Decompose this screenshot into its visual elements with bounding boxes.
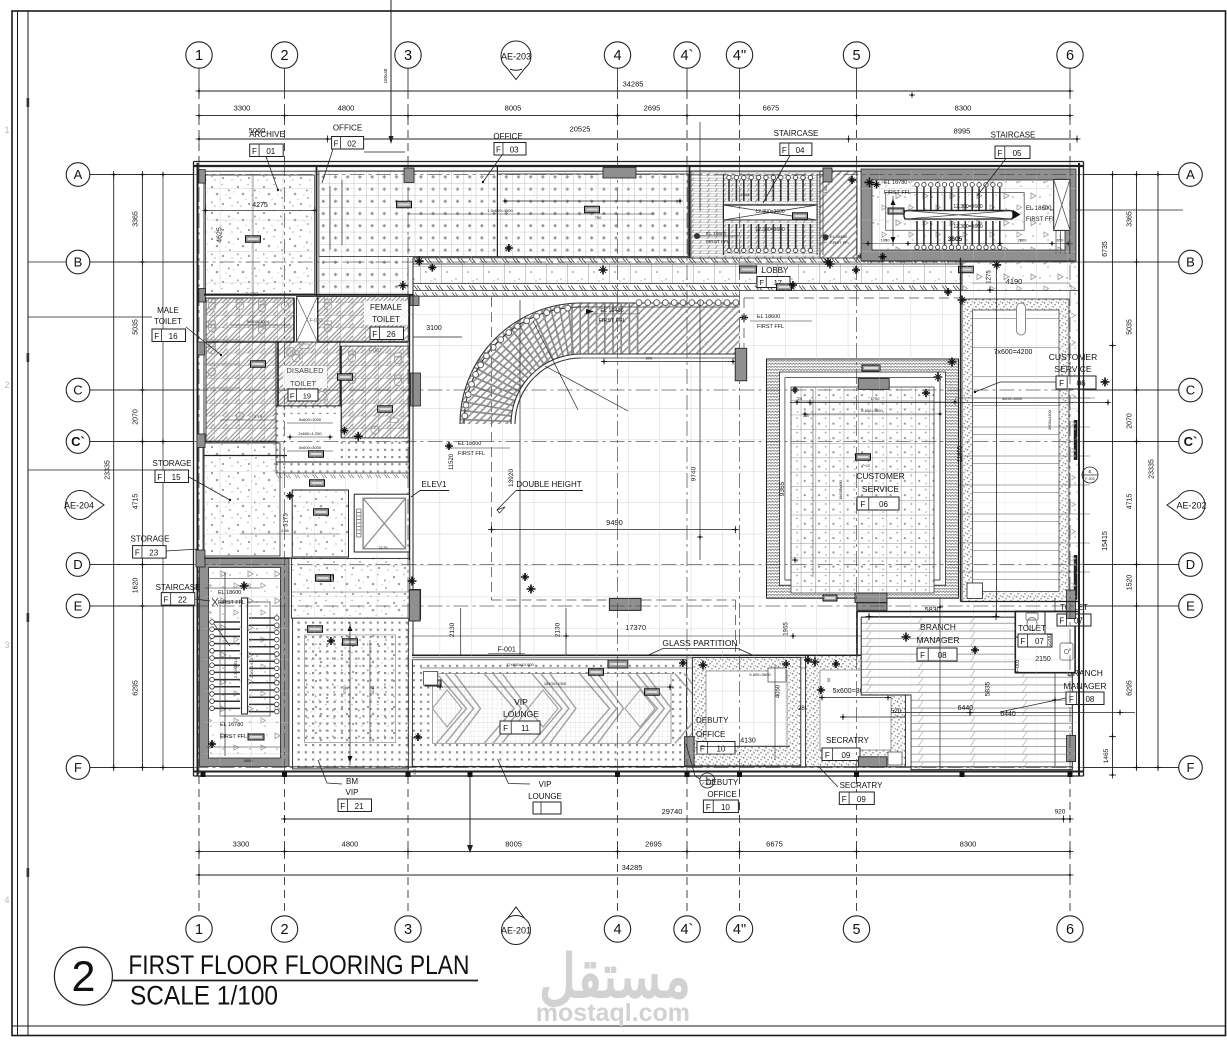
svg-text:9740: 9740 <box>691 466 698 481</box>
svg-text:14600x400: 14600x400 <box>838 479 843 500</box>
svg-text:MALE: MALE <box>157 306 179 315</box>
svg-text:B: B <box>1186 255 1195 270</box>
svg-text:4625: 4625 <box>217 227 224 243</box>
svg-text:EL 16486: EL 16486 <box>600 308 623 314</box>
svg-text:6735: 6735 <box>1102 241 1109 257</box>
svg-text:EL 16780: EL 16780 <box>884 180 907 186</box>
svg-text:8005: 8005 <box>505 839 522 848</box>
svg-text:2695: 2695 <box>645 839 662 848</box>
svg-text:STAIRCASE: STAIRCASE <box>991 131 1036 140</box>
svg-text:BM: BM <box>346 777 358 786</box>
svg-text:19: 19 <box>303 391 311 400</box>
svg-text:3700: 3700 <box>342 685 347 695</box>
svg-text:2.30=3.610: 2.30=3.610 <box>249 657 254 678</box>
svg-text:5035: 5035 <box>133 319 140 335</box>
svg-text:STAIRCASE: STAIRCASE <box>774 129 819 138</box>
svg-text:FIRST FFL: FIRST FFL <box>884 190 911 196</box>
svg-text:15: 15 <box>172 473 181 482</box>
svg-text:F-003: F-003 <box>1015 659 1021 672</box>
svg-text:AE-203: AE-203 <box>501 52 531 62</box>
svg-text:6295: 6295 <box>133 680 140 696</box>
svg-text:F: F <box>825 751 830 760</box>
svg-text:11520: 11520 <box>449 453 455 470</box>
svg-text:03: 03 <box>510 145 519 154</box>
svg-text:F: F <box>372 330 377 339</box>
svg-text:F: F <box>700 744 705 753</box>
svg-text:15415: 15415 <box>1102 531 1109 551</box>
svg-text:4: 4 <box>613 48 621 64</box>
svg-text:5.600=3600: 5.600=3600 <box>749 672 771 677</box>
svg-text:C: C <box>1186 383 1195 398</box>
svg-text:17x600x10.000: 17x600x10.000 <box>506 662 534 667</box>
svg-text:DOUBLE HEIGHT: DOUBLE HEIGHT <box>516 480 581 489</box>
svg-text:ARCHIVE: ARCHIVE <box>249 130 285 139</box>
svg-text:F: F <box>164 595 169 604</box>
svg-text:SECRATRY: SECRATRY <box>826 736 869 745</box>
svg-text:FIRST FFL: FIRST FFL <box>830 240 850 245</box>
svg-text:4`: 4` <box>681 922 694 938</box>
svg-text:5835: 5835 <box>985 681 992 696</box>
svg-text:29740: 29740 <box>662 807 683 816</box>
svg-text:1965: 1965 <box>783 622 789 636</box>
svg-text:D: D <box>73 557 82 572</box>
svg-text:04: 04 <box>796 146 805 155</box>
svg-text:10: 10 <box>716 744 725 753</box>
svg-text:06: 06 <box>879 500 888 509</box>
svg-text:F: F <box>997 149 1002 158</box>
svg-text:1620: 1620 <box>133 578 140 594</box>
svg-text:05: 05 <box>1013 149 1022 158</box>
svg-text:4715: 4715 <box>133 494 140 510</box>
svg-text:4": 4" <box>733 922 746 938</box>
svg-text:2: 2 <box>280 48 288 64</box>
svg-text:DEBUTY: DEBUTY <box>696 716 729 725</box>
svg-text:FIRST FFL: FIRST FFL <box>757 324 784 330</box>
svg-text:2365: 2365 <box>741 192 751 197</box>
svg-text:09: 09 <box>857 795 866 804</box>
svg-text:22: 22 <box>178 595 187 604</box>
svg-text:TOILET: TOILET <box>1018 624 1046 633</box>
svg-text:D: D <box>1186 557 1195 572</box>
svg-text:FIRST FLOOR FLOORING PLAN: FIRST FLOOR FLOORING PLAN <box>128 950 469 980</box>
svg-text:LOUNGE: LOUNGE <box>503 709 539 719</box>
svg-text:2800: 2800 <box>1018 238 1028 243</box>
svg-text:4800: 4800 <box>338 104 355 113</box>
svg-text:2150: 2150 <box>1035 656 1051 663</box>
svg-text:12.300=3600: 12.300=3600 <box>953 204 983 210</box>
svg-text:3: 3 <box>404 922 412 938</box>
svg-text:FIRST FFL: FIRST FFL <box>598 318 625 324</box>
svg-text:F: F <box>154 332 159 341</box>
svg-text:21: 21 <box>355 802 364 811</box>
svg-text:4715: 4715 <box>1127 494 1134 510</box>
svg-text:34285: 34285 <box>623 80 644 89</box>
svg-text:OFFICE: OFFICE <box>333 124 362 133</box>
svg-text:EL 16480: EL 16480 <box>830 234 848 239</box>
svg-text:2: 2 <box>4 380 9 390</box>
svg-text:07: 07 <box>1035 637 1044 646</box>
svg-text:4275: 4275 <box>252 202 268 209</box>
svg-text:F: F <box>759 278 764 287</box>
svg-text:FIRST FFL: FIRST FFL <box>1026 217 1056 223</box>
svg-text:26: 26 <box>387 330 396 339</box>
svg-text:08: 08 <box>1085 695 1094 704</box>
svg-text:23: 23 <box>149 548 158 557</box>
svg-text:6440: 6440 <box>958 705 974 712</box>
svg-text:FIRST FFL: FIRST FFL <box>218 600 245 606</box>
svg-text:F: F <box>1059 616 1064 625</box>
svg-text:50: 50 <box>826 677 831 682</box>
svg-text:EL 18600: EL 18600 <box>1026 206 1052 212</box>
svg-text:08: 08 <box>938 651 947 660</box>
svg-text:12.300=3600: 12.300=3600 <box>755 209 785 215</box>
svg-text:FIRST FFL: FIRST FFL <box>458 451 485 457</box>
svg-text:DEBUTY: DEBUTY <box>706 778 739 787</box>
svg-text:13920: 13920 <box>508 469 515 487</box>
svg-text:9365: 9365 <box>779 481 786 496</box>
svg-text:OFFICE: OFFICE <box>493 132 522 141</box>
svg-text:5035: 5035 <box>1127 319 1134 335</box>
svg-text:9490: 9490 <box>606 518 623 527</box>
svg-text:4800: 4800 <box>342 839 359 848</box>
svg-text:C`: C` <box>71 434 85 449</box>
svg-text:5x600=3000: 5x600=3000 <box>299 445 322 450</box>
svg-text:OFFICE: OFFICE <box>696 730 725 739</box>
svg-text:6295: 6295 <box>1127 680 1134 696</box>
svg-text:GLASS PARTITION: GLASS PARTITION <box>662 638 737 648</box>
svg-text:11: 11 <box>521 724 530 733</box>
svg-text:34285: 34285 <box>622 863 643 872</box>
svg-text:5x600=3000: 5x600=3000 <box>247 319 270 324</box>
svg-text:F: F <box>706 803 711 812</box>
svg-text:ELEV1: ELEV1 <box>422 480 447 489</box>
svg-text:F-007: F-007 <box>368 348 381 354</box>
svg-text:3300: 3300 <box>233 839 250 848</box>
svg-text:SECRATRY: SECRATRY <box>840 781 883 790</box>
svg-text:23335: 23335 <box>1149 459 1156 479</box>
svg-text:TOILET: TOILET <box>290 379 317 388</box>
svg-text:7x600=4200: 7x600=4200 <box>994 349 1033 356</box>
svg-text:LOUNGE: LOUNGE <box>528 792 562 801</box>
svg-text:12.300=3600: 12.300=3600 <box>953 224 983 230</box>
svg-text:8995: 8995 <box>954 127 971 136</box>
svg-text:2.19: 2.19 <box>254 414 263 419</box>
svg-text:4: 4 <box>613 922 621 938</box>
svg-text:F: F <box>290 391 295 400</box>
svg-text:F: F <box>334 139 339 148</box>
svg-text:6675: 6675 <box>766 839 783 848</box>
svg-text:F: F <box>1020 637 1025 646</box>
svg-text:F: F <box>860 500 865 509</box>
svg-text:F-003: F-003 <box>309 318 322 324</box>
svg-text:2170: 2170 <box>379 545 389 550</box>
svg-text:C`: C` <box>1184 434 1198 449</box>
svg-text:F: F <box>1187 760 1195 775</box>
svg-text:B: B <box>74 255 83 270</box>
svg-text:F: F <box>782 146 787 155</box>
svg-text:A: A <box>74 167 83 182</box>
svg-text:600: 600 <box>646 356 653 361</box>
svg-text:3600: 3600 <box>244 758 254 763</box>
svg-text:3100: 3100 <box>426 325 442 332</box>
svg-text:4`: 4` <box>681 48 694 64</box>
svg-text:3365: 3365 <box>133 211 140 227</box>
svg-text:1050: 1050 <box>881 238 891 243</box>
svg-text:E: E <box>1088 469 1091 474</box>
svg-text:A: A <box>1186 167 1195 182</box>
svg-text:TOILET: TOILET <box>154 317 182 326</box>
svg-text:3: 3 <box>4 640 9 650</box>
svg-text:2070: 2070 <box>133 409 140 425</box>
svg-text:6: 6 <box>1066 48 1074 64</box>
svg-text:E: E <box>74 599 83 614</box>
svg-text:LOBBY: LOBBY <box>762 266 789 275</box>
svg-text:F-001: F-001 <box>497 647 515 654</box>
svg-text:920: 920 <box>1055 809 1066 816</box>
svg-text:1275: 1275 <box>987 270 993 284</box>
svg-text:09: 09 <box>841 751 850 760</box>
svg-text:F: F <box>920 651 925 660</box>
svg-text:250: 250 <box>803 414 809 418</box>
svg-text:STORAGE: STORAGE <box>153 459 192 468</box>
svg-text:4130: 4130 <box>740 738 756 745</box>
svg-text:3605: 3605 <box>948 236 963 243</box>
svg-text:1: 1 <box>195 922 203 938</box>
svg-text:EL 18600: EL 18600 <box>218 590 241 596</box>
svg-text:4: 4 <box>4 895 9 905</box>
svg-text:4050: 4050 <box>775 684 781 698</box>
svg-text:F: F <box>842 795 847 804</box>
svg-text:VIP: VIP <box>346 788 359 797</box>
svg-text:6675: 6675 <box>763 104 780 113</box>
svg-text:F: F <box>503 724 508 733</box>
svg-text:5: 5 <box>852 48 860 64</box>
svg-text:2200: 2200 <box>1047 634 1053 646</box>
svg-text:4215: 4215 <box>370 685 375 695</box>
svg-text:AE-201: AE-201 <box>501 926 531 936</box>
svg-text:2130: 2130 <box>554 622 561 637</box>
svg-text:AE-204: AE-204 <box>64 501 94 511</box>
svg-text:F-003: F-003 <box>1085 477 1094 481</box>
svg-text:6440: 6440 <box>1000 711 1016 718</box>
svg-text:3: 3 <box>404 48 412 64</box>
svg-text:E: E <box>1186 599 1195 614</box>
svg-text:1700: 1700 <box>871 396 881 401</box>
svg-text:FEMALE: FEMALE <box>370 303 402 312</box>
svg-text:4190: 4190 <box>1006 277 1023 286</box>
svg-text:F: F <box>252 147 257 156</box>
svg-text:2x600=1.200: 2x600=1.200 <box>298 431 322 436</box>
svg-text:3600x1300: 3600x1300 <box>1047 409 1052 430</box>
svg-text:FIRST FFL: FIRST FFL <box>220 734 247 740</box>
svg-text:C: C <box>73 383 82 398</box>
svg-text:2: 2 <box>71 953 95 1001</box>
svg-text:5: 5 <box>852 922 860 938</box>
svg-text:20525: 20525 <box>570 125 591 134</box>
svg-text:2.30=3.610: 2.30=3.610 <box>233 657 238 678</box>
svg-text:16: 16 <box>169 332 178 341</box>
svg-text:EL 18600: EL 18600 <box>757 314 780 320</box>
svg-text:2: 2 <box>280 922 288 938</box>
svg-text:BRANCH: BRANCH <box>920 622 956 632</box>
svg-text:mostaql.com: mostaql.com <box>536 999 690 1027</box>
svg-text:F: F <box>74 760 82 775</box>
svg-text:750: 750 <box>595 215 602 220</box>
svg-text:520: 520 <box>891 708 902 715</box>
svg-text:5x600=1000: 5x600=1000 <box>299 417 322 422</box>
svg-text:FIRST FFL: FIRST FFL <box>706 239 730 245</box>
svg-text:1520: 1520 <box>1127 575 1134 591</box>
svg-text:160x48: 160x48 <box>383 68 388 83</box>
svg-text:1.5x600=4500: 1.5x600=4500 <box>487 208 513 213</box>
svg-text:F: F <box>496 145 501 154</box>
svg-text:8005: 8005 <box>505 104 522 113</box>
svg-text:01: 01 <box>266 147 275 156</box>
svg-text:OFFICE: OFFICE <box>707 790 736 799</box>
svg-text:3300: 3300 <box>234 104 251 113</box>
svg-text:2130: 2130 <box>449 622 456 637</box>
svg-text:4600=1600: 4600=1600 <box>1002 396 1023 401</box>
svg-text:10: 10 <box>721 803 730 812</box>
svg-text:5830: 5830 <box>925 607 941 614</box>
svg-text:F: F <box>340 802 345 811</box>
svg-text:SERVICE: SERVICE <box>862 484 899 494</box>
svg-text:6.600=3600: 6.600=3600 <box>861 408 883 413</box>
svg-text:3365: 3365 <box>1127 211 1134 227</box>
svg-text:MANAGER: MANAGER <box>917 635 960 645</box>
svg-text:STAIRCASE: STAIRCASE <box>156 583 201 592</box>
svg-text:6: 6 <box>1066 922 1074 938</box>
svg-text:16400=1005: 16400=1005 <box>544 681 567 686</box>
svg-text:4": 4" <box>733 48 746 64</box>
svg-text:1: 1 <box>4 125 9 135</box>
svg-text:7+12: 7+12 <box>862 464 870 468</box>
svg-text:EL 16780: EL 16780 <box>220 722 243 728</box>
svg-text:1: 1 <box>195 48 203 64</box>
svg-text:8300: 8300 <box>955 104 972 113</box>
svg-text:TOILET: TOILET <box>372 315 400 324</box>
svg-text:STORAGE: STORAGE <box>131 535 170 544</box>
svg-text:DISABLED: DISABLED <box>286 366 324 375</box>
svg-text:SCALE 1/100: SCALE 1/100 <box>130 981 278 1011</box>
svg-text:F: F <box>157 473 162 482</box>
svg-text:AE-202: AE-202 <box>1176 501 1206 511</box>
svg-text:VIP: VIP <box>514 697 528 707</box>
svg-text:02: 02 <box>347 139 356 148</box>
svg-text:7.50: 7.50 <box>823 185 828 194</box>
svg-text:F: F <box>135 548 140 557</box>
svg-text:2695: 2695 <box>644 104 661 113</box>
svg-text:VIP: VIP <box>539 780 552 789</box>
svg-text:25: 25 <box>798 396 803 401</box>
svg-text:17370: 17370 <box>625 623 646 632</box>
svg-text:12.300=3600: 12.300=3600 <box>755 227 785 233</box>
svg-text:2.66: 2.66 <box>281 528 290 533</box>
svg-text:CUSTOMER: CUSTOMER <box>856 471 905 481</box>
svg-text:1465: 1465 <box>1103 748 1110 763</box>
svg-text:2070: 2070 <box>1127 413 1134 429</box>
svg-text:8300: 8300 <box>960 839 977 848</box>
svg-text:F: F <box>1059 379 1064 388</box>
